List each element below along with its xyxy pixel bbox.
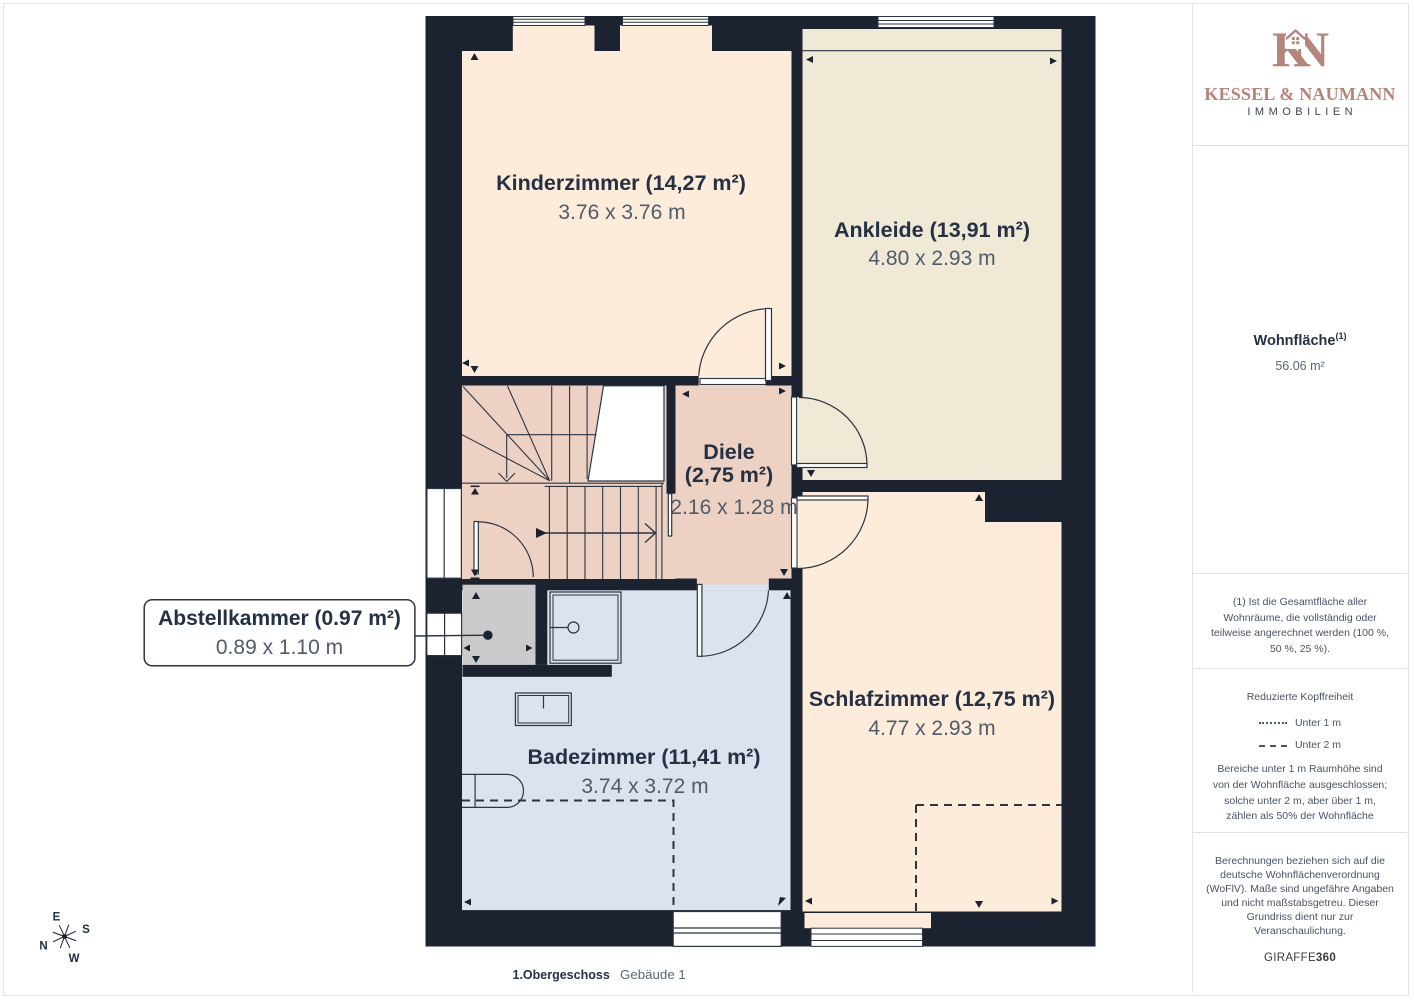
svg-text:Schlafzimmer (12,75 m²): Schlafzimmer (12,75 m²) — [809, 687, 1055, 711]
svg-text:3.76 x 3.76 m: 3.76 x 3.76 m — [558, 201, 685, 224]
svg-text:Diele: Diele — [703, 440, 754, 464]
svg-text:S: S — [82, 924, 90, 936]
svg-text:N: N — [39, 941, 47, 953]
svg-text:0.89 x 1.10 m: 0.89 x 1.10 m — [216, 636, 343, 659]
svg-text:Abstellkammer (0.97 m²): Abstellkammer (0.97 m²) — [158, 607, 401, 630]
svg-text:W: W — [69, 953, 80, 965]
svg-text:E: E — [53, 912, 61, 924]
svg-text:4.80 x 2.93 m: 4.80 x 2.93 m — [868, 247, 995, 270]
svg-text:Badezimmer (11,41 m²): Badezimmer (11,41 m²) — [527, 745, 760, 769]
svg-text:4.77 x 2.93 m: 4.77 x 2.93 m — [868, 717, 995, 740]
svg-text:Kinderzimmer (14,27 m²): Kinderzimmer (14,27 m²) — [496, 171, 746, 195]
svg-text:2.16 x 1.28 m: 2.16 x 1.28 m — [670, 496, 797, 519]
svg-text:Gebäude 1: Gebäude 1 — [620, 967, 686, 982]
svg-text:(2,75 m²): (2,75 m²) — [685, 463, 773, 487]
svg-text:1.Obergeschoss: 1.Obergeschoss — [513, 968, 610, 982]
svg-text:Ankleide (13,91 m²): Ankleide (13,91 m²) — [834, 218, 1030, 242]
svg-text:3.74 x 3.72 m: 3.74 x 3.72 m — [581, 775, 708, 798]
